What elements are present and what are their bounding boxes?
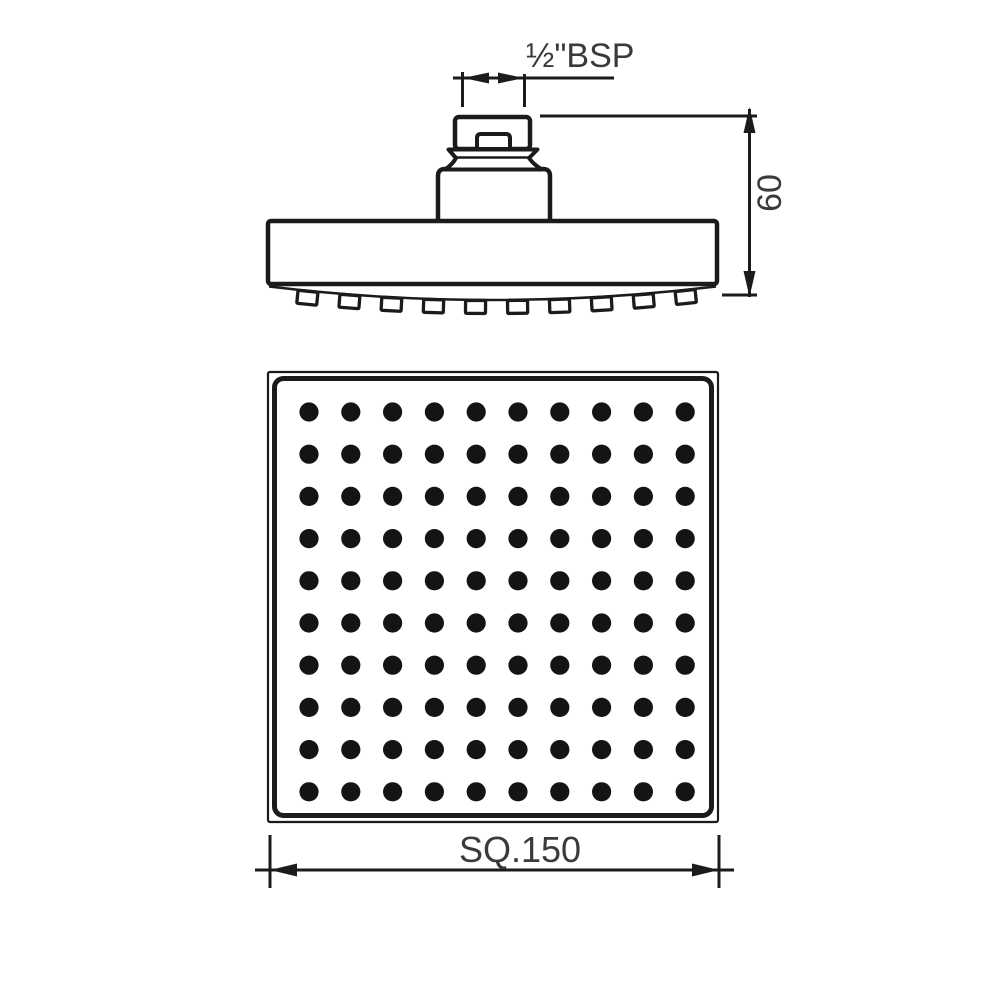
nozzle-dot	[592, 529, 611, 548]
nozzle-dot	[676, 445, 695, 464]
nozzle-dot	[634, 445, 653, 464]
showerhead-side-profile	[268, 117, 717, 313]
nozzle-dot	[383, 613, 402, 632]
nozzle-dot	[634, 656, 653, 675]
nozzle-dot	[383, 782, 402, 801]
nozzle-dot	[383, 402, 402, 421]
nozzle-dot	[425, 402, 444, 421]
nozzle-dot	[425, 656, 444, 675]
nozzle-dot	[341, 445, 360, 464]
nozzle-dot	[634, 402, 653, 421]
nozzle-dot	[550, 402, 569, 421]
nozzle-dot	[299, 656, 318, 675]
nozzle-dot	[383, 740, 402, 759]
nozzle-dot	[341, 487, 360, 506]
nozzle-dot	[592, 571, 611, 590]
nozzle-dot	[508, 656, 527, 675]
side-nozzle	[675, 289, 696, 304]
nozzle-dot	[634, 740, 653, 759]
nozzle-dot	[425, 445, 444, 464]
nozzle-dot	[341, 571, 360, 590]
nozzle-dot	[550, 613, 569, 632]
nozzle-dot	[508, 445, 527, 464]
width-arrow-right	[692, 864, 719, 877]
nozzle-dot	[508, 740, 527, 759]
nozzle-dot	[592, 445, 611, 464]
nozzle-dot	[676, 613, 695, 632]
nozzle-dot	[508, 402, 527, 421]
nozzle-dot	[467, 445, 486, 464]
nozzle-dot	[299, 782, 318, 801]
nozzle-dot	[383, 529, 402, 548]
side-nozzle	[339, 294, 360, 308]
height-dim-label: 60	[751, 174, 789, 212]
nozzle-dot	[467, 656, 486, 675]
height-arrow-bottom	[744, 271, 756, 297]
nozzle-dot	[634, 571, 653, 590]
side-nozzle	[633, 294, 654, 309]
nozzle-dot	[634, 529, 653, 548]
thread-dimension: ½"BSP	[453, 37, 634, 107]
head-body	[268, 221, 717, 284]
side-nozzle	[591, 297, 612, 311]
nozzle-dot	[383, 487, 402, 506]
nozzle-dot	[508, 782, 527, 801]
nozzle-dot	[550, 571, 569, 590]
nozzle-dot	[425, 740, 444, 759]
mount-block	[438, 169, 550, 223]
thread-arrow-right	[498, 73, 524, 84]
nozzle-dot	[676, 571, 695, 590]
nozzle-dot	[341, 656, 360, 675]
nozzle-dot	[383, 656, 402, 675]
nozzle-dot	[592, 698, 611, 717]
nozzle-dot	[508, 613, 527, 632]
nozzle-dot	[425, 487, 444, 506]
nozzle-dot	[592, 656, 611, 675]
nut-inner-tab	[477, 134, 510, 149]
width-arrow-left	[270, 864, 297, 877]
nozzle-dot	[592, 402, 611, 421]
nozzle-dot	[467, 782, 486, 801]
width-dimension: SQ.150	[255, 829, 734, 888]
nozzle-dot	[550, 656, 569, 675]
nozzle-dot	[425, 782, 444, 801]
side-nozzle-row	[297, 289, 697, 313]
nozzle-dot	[299, 740, 318, 759]
nozzle-dot	[550, 740, 569, 759]
nozzle-dot	[299, 698, 318, 717]
nozzle-dot	[341, 402, 360, 421]
nozzle-dot	[634, 487, 653, 506]
nozzle-dot	[508, 529, 527, 548]
nozzle-dot	[550, 445, 569, 464]
nozzle-dot	[634, 782, 653, 801]
nozzle-dot	[676, 487, 695, 506]
nozzle-dot	[550, 529, 569, 548]
nozzle-dot	[425, 529, 444, 548]
side-nozzle	[381, 297, 402, 311]
nozzle-dot	[676, 402, 695, 421]
collar-flange	[445, 150, 542, 170]
nozzle-dot	[383, 571, 402, 590]
thread-dim-label: ½"BSP	[526, 37, 634, 75]
nozzle-dot	[508, 698, 527, 717]
side-nozzle	[297, 290, 318, 305]
nozzle-dot	[676, 656, 695, 675]
nozzle-dot	[425, 571, 444, 590]
nozzle-dot	[425, 613, 444, 632]
height-arrow-top	[744, 107, 756, 133]
side-nozzle	[465, 300, 485, 313]
nozzle-dot	[467, 740, 486, 759]
nozzle-dot	[341, 529, 360, 548]
side-nozzle	[549, 299, 569, 313]
nozzle-dot	[508, 571, 527, 590]
nozzle-dot	[508, 487, 527, 506]
nozzle-dot	[592, 613, 611, 632]
nozzle-dot	[467, 529, 486, 548]
thread-arrow-left	[463, 73, 489, 84]
nozzle-dot	[341, 740, 360, 759]
face-view: SQ.150	[255, 372, 734, 888]
side-nozzle	[508, 300, 528, 313]
nozzle-dot	[676, 698, 695, 717]
nozzle-dot	[383, 698, 402, 717]
nozzle-dot	[299, 529, 318, 548]
shower-head-drawing: ½"BSP	[0, 0, 1000, 1000]
nozzle-dot	[467, 402, 486, 421]
nozzle-dot	[383, 445, 402, 464]
technical-drawing-page: ½"BSP	[0, 0, 1000, 1000]
nozzle-dot	[676, 529, 695, 548]
nozzle-dot	[467, 698, 486, 717]
nozzle-dot	[467, 613, 486, 632]
nozzle-dot	[550, 782, 569, 801]
nozzle-dot	[550, 698, 569, 717]
nozzle-dot	[676, 782, 695, 801]
nozzle-dot	[592, 782, 611, 801]
nozzle-dot	[299, 402, 318, 421]
nozzle-dot	[341, 698, 360, 717]
nozzle-dot	[634, 613, 653, 632]
nozzle-dot	[341, 613, 360, 632]
nozzle-dot	[467, 571, 486, 590]
nozzle-dot	[467, 487, 486, 506]
nozzle-dot	[592, 740, 611, 759]
side-view: ½"BSP	[268, 37, 789, 313]
width-dim-label: SQ.150	[459, 829, 581, 870]
nozzle-dot	[425, 698, 444, 717]
nozzle-dot	[299, 613, 318, 632]
side-nozzle	[423, 299, 443, 313]
nozzle-dot	[299, 445, 318, 464]
nozzle-dot	[676, 740, 695, 759]
nozzle-dot	[592, 487, 611, 506]
nozzle-dot	[299, 571, 318, 590]
nozzle-dot	[341, 782, 360, 801]
nozzle-dot	[634, 698, 653, 717]
nozzle-dot	[550, 487, 569, 506]
nozzle-dot	[299, 487, 318, 506]
